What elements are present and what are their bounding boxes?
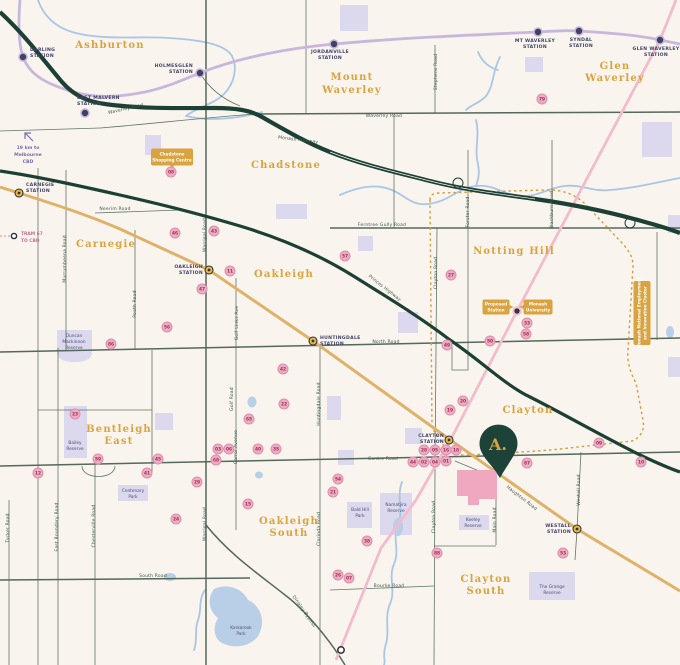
svg-text:40: 40 xyxy=(255,447,261,453)
map-marker: 19 xyxy=(445,405,455,415)
map-marker: 33 xyxy=(522,318,532,328)
road-label: East Boundary Road xyxy=(54,502,60,551)
suburb-label: ClaytonSouth xyxy=(460,574,511,597)
road-label: Golf Links Ave xyxy=(234,306,240,341)
suburb-label: Oakleigh xyxy=(254,269,314,280)
svg-text:Monash National Employmentand: Monash National Employmentand Innovation… xyxy=(637,278,648,349)
svg-text:01: 01 xyxy=(443,459,449,465)
svg-text:02: 02 xyxy=(421,460,427,466)
pin-label: A. xyxy=(488,435,507,454)
suburb-label: Clayton xyxy=(502,405,553,416)
svg-text:ProposedStation: ProposedStation xyxy=(485,302,507,313)
svg-text:33: 33 xyxy=(524,321,530,327)
map-marker: 04 xyxy=(430,457,440,467)
station xyxy=(513,307,520,314)
svg-text:29: 29 xyxy=(194,480,200,486)
road-label: Bourke Road xyxy=(374,583,405,589)
svg-text:88: 88 xyxy=(434,551,440,557)
suburb-label: Notting Hill xyxy=(473,246,555,257)
map-marker: 43 xyxy=(209,226,219,236)
map-marker: 86 xyxy=(106,339,116,349)
road-label: Blackburn Road xyxy=(549,191,555,229)
map-marker: 58 xyxy=(521,329,531,339)
map-marker: 53 xyxy=(558,548,568,558)
map-marker: 29 xyxy=(192,477,202,487)
svg-text:MonashUniversity: MonashUniversity xyxy=(526,302,550,313)
svg-text:21: 21 xyxy=(330,490,336,496)
svg-text:41: 41 xyxy=(144,471,150,477)
map-marker: 02 xyxy=(419,457,429,467)
road-label: Ferntree Gully Road xyxy=(358,222,406,228)
svg-text:22: 22 xyxy=(281,402,287,408)
map-marker: 42 xyxy=(278,364,288,374)
road-label: Murrumbeena Road xyxy=(62,235,68,283)
map-marker: 59 xyxy=(93,454,103,464)
road-label: Main Road xyxy=(492,507,498,532)
svg-text:06: 06 xyxy=(226,447,232,453)
svg-text:45: 45 xyxy=(155,457,161,463)
svg-text:07: 07 xyxy=(346,576,352,582)
svg-text:38: 38 xyxy=(364,539,370,545)
map-marker: 09 xyxy=(594,438,604,448)
road-label: Clayton Road xyxy=(433,257,439,289)
svg-text:54: 54 xyxy=(335,477,341,483)
svg-text:20: 20 xyxy=(460,399,466,405)
road-label: Stephens Road xyxy=(433,54,439,90)
svg-text:10: 10 xyxy=(638,460,644,466)
svg-text:05: 05 xyxy=(432,448,438,454)
svg-text:03: 03 xyxy=(215,447,221,453)
map-marker: 41 xyxy=(142,468,152,478)
map-marker: 56 xyxy=(162,322,172,332)
map-canvas: Waverley RoadWaverley RoadMonash Freeway… xyxy=(0,0,680,665)
svg-text:35: 35 xyxy=(273,447,279,453)
rail-terminus-icon xyxy=(338,647,344,653)
map-marker: 38 xyxy=(362,536,372,546)
road-label: Neerim Road xyxy=(99,206,130,212)
road-label: Waverley Road xyxy=(366,113,402,119)
svg-text:46: 46 xyxy=(172,231,178,237)
map-marker: 18 xyxy=(451,445,461,455)
road-label: Chesterville Road xyxy=(91,505,97,548)
map-marker: 40 xyxy=(253,444,263,454)
map-marker: 08 xyxy=(166,167,176,177)
map-marker: 54 xyxy=(333,474,343,484)
map-marker: 79 xyxy=(537,94,547,104)
svg-text:23: 23 xyxy=(72,412,78,418)
badge: ProposedStation xyxy=(483,300,514,315)
road-label: Golf Road xyxy=(229,387,235,411)
road-label: Westall Road xyxy=(576,474,582,505)
svg-text:19: 19 xyxy=(447,408,453,414)
svg-text:08: 08 xyxy=(168,170,174,176)
svg-text:18: 18 xyxy=(453,448,459,454)
map-marker: 87 xyxy=(522,458,532,468)
svg-text:27: 27 xyxy=(448,273,454,279)
map-marker: 57 xyxy=(340,251,350,261)
svg-text:86: 86 xyxy=(108,342,114,348)
map-marker: 21 xyxy=(328,487,338,497)
svg-text:15: 15 xyxy=(245,502,251,508)
svg-text:12: 12 xyxy=(35,471,41,477)
map-marker: 35 xyxy=(271,444,281,454)
map-marker: 24 xyxy=(171,514,181,524)
road-label: Huntingdale Road xyxy=(316,382,322,425)
road-label: South Road xyxy=(139,573,167,579)
badge: Monash National Employmentand Innovation… xyxy=(634,278,651,349)
svg-text:11: 11 xyxy=(227,269,233,275)
svg-text:57: 57 xyxy=(342,254,348,260)
map-marker: 28 xyxy=(419,445,429,455)
map-marker: 16 xyxy=(441,445,451,455)
map-marker: 46 xyxy=(170,228,180,238)
map-marker: 27 xyxy=(446,270,456,280)
map-marker: 26 xyxy=(333,570,343,580)
svg-text:47: 47 xyxy=(199,287,205,293)
svg-text:65: 65 xyxy=(246,417,252,423)
badge: MonashUniversity xyxy=(520,300,553,315)
suburb-label: Carnegie xyxy=(76,239,136,250)
map-marker: 03 xyxy=(213,444,223,454)
svg-text:79: 79 xyxy=(539,97,545,103)
map-marker: 47 xyxy=(197,284,207,294)
map-marker: 65 xyxy=(244,414,254,424)
map-marker: 22 xyxy=(279,399,289,409)
svg-text:04: 04 xyxy=(432,460,438,466)
svg-text:16: 16 xyxy=(443,448,449,454)
road-label: Tucker Road xyxy=(5,513,11,543)
svg-text:49: 49 xyxy=(444,343,450,349)
map-marker: 10 xyxy=(636,457,646,467)
svg-text:56: 56 xyxy=(164,325,170,331)
tram-stop-icon xyxy=(11,233,16,238)
road-label: Clayton Road xyxy=(431,501,437,533)
svg-text:50: 50 xyxy=(487,339,493,345)
road-label: Poath Road xyxy=(132,290,138,317)
svg-text:09: 09 xyxy=(596,441,602,447)
map-marker: 12 xyxy=(33,468,43,478)
svg-text:58: 58 xyxy=(523,332,529,338)
map-marker: 44 xyxy=(408,457,418,467)
svg-text:59: 59 xyxy=(95,457,101,463)
svg-text:44: 44 xyxy=(410,460,416,466)
map-marker: 07 xyxy=(344,573,354,583)
suburb-label: Chadstone xyxy=(251,160,321,171)
map-marker: 49 xyxy=(442,340,452,350)
svg-text:68: 68 xyxy=(213,458,219,464)
svg-text:43: 43 xyxy=(211,229,217,235)
suburb-label: Ashburton xyxy=(74,40,145,51)
road-label: North Road xyxy=(372,339,399,345)
road-label: Warrigal Road xyxy=(202,507,208,541)
svg-text:87: 87 xyxy=(524,461,530,467)
map-marker: 23 xyxy=(70,409,80,419)
road-label: Centre Road xyxy=(368,456,398,462)
road-label: Forster Road xyxy=(465,197,471,228)
suburb-map: Waverley RoadWaverley RoadMonash Freeway… xyxy=(0,0,680,665)
svg-text:28: 28 xyxy=(421,448,427,454)
map-marker: 88 xyxy=(432,548,442,558)
svg-text:26: 26 xyxy=(335,573,341,579)
map-marker: 06 xyxy=(224,444,234,454)
road-label: Warrigal Road xyxy=(202,218,208,252)
map-marker: 45 xyxy=(153,454,163,464)
map-marker: 50 xyxy=(485,336,495,346)
map-marker: 20 xyxy=(458,396,468,406)
map-marker: 05 xyxy=(430,445,440,455)
map-marker: 11 xyxy=(225,266,235,276)
map-marker: 68 xyxy=(211,455,221,465)
svg-text:42: 42 xyxy=(280,367,286,373)
svg-text:53: 53 xyxy=(560,551,566,557)
svg-text:24: 24 xyxy=(173,517,179,523)
map-marker: 01 xyxy=(441,456,451,466)
map-marker: 15 xyxy=(243,499,253,509)
